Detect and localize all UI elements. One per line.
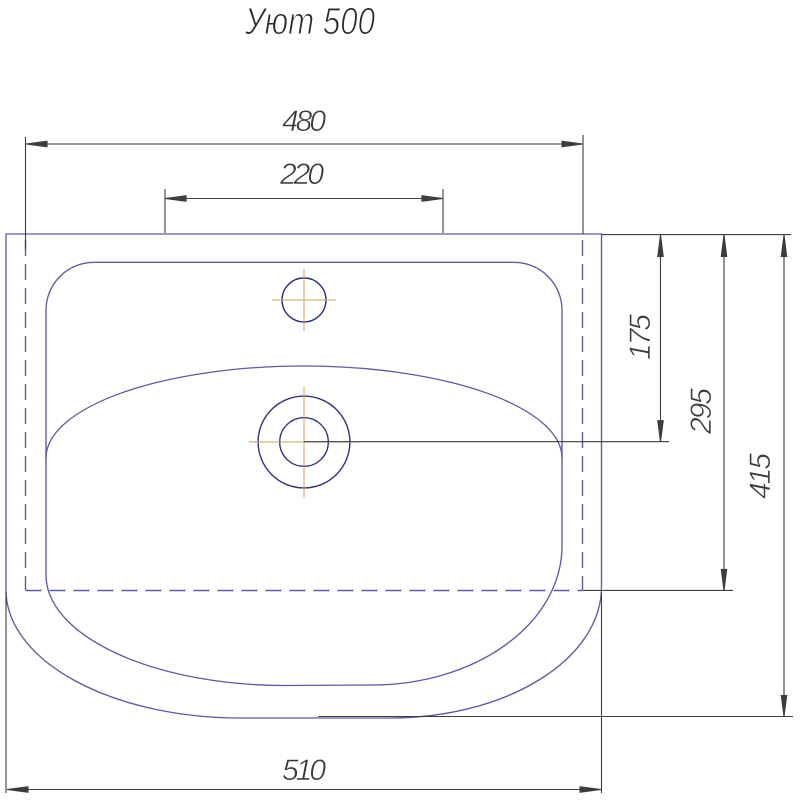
svg-text:295: 295 [685, 388, 718, 435]
svg-text:175: 175 [624, 314, 657, 360]
svg-text:480: 480 [282, 105, 326, 138]
svg-text:220: 220 [279, 158, 324, 191]
svg-text:510: 510 [282, 754, 326, 787]
svg-text:Уют 500: Уют 500 [244, 1, 375, 43]
svg-text:415: 415 [744, 453, 777, 499]
